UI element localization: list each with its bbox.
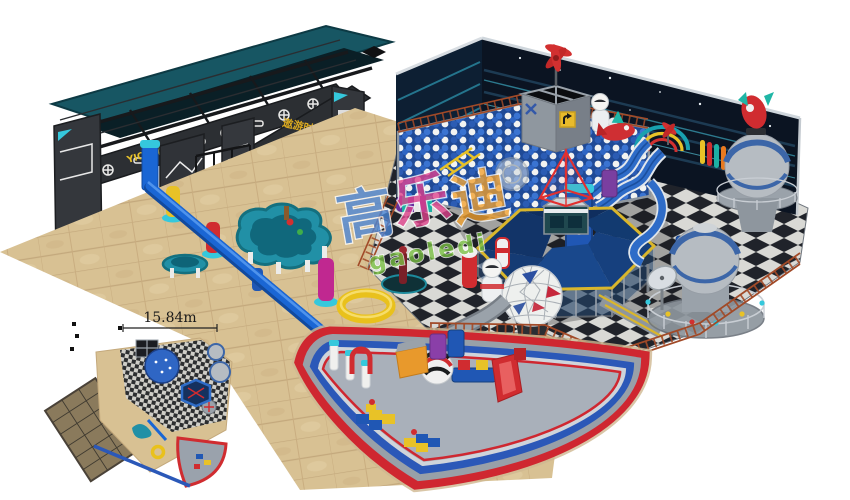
watermark-char-3: 迪 (447, 161, 513, 235)
watermark-char-1: 高 (332, 179, 398, 253)
turn-sign (560, 112, 575, 127)
plan-tick-dots (70, 322, 122, 351)
sand-table (237, 204, 330, 274)
purple-box-tower (602, 170, 617, 197)
dimension-label: 15.84m (143, 310, 196, 326)
playground-render: YIQI乐园 遨游时空 (0, 0, 850, 500)
plan-fan-zone (178, 438, 226, 486)
render-canvas: YIQI乐园 遨游时空 (0, 0, 850, 500)
watermark-char-2: 乐 (389, 165, 455, 239)
